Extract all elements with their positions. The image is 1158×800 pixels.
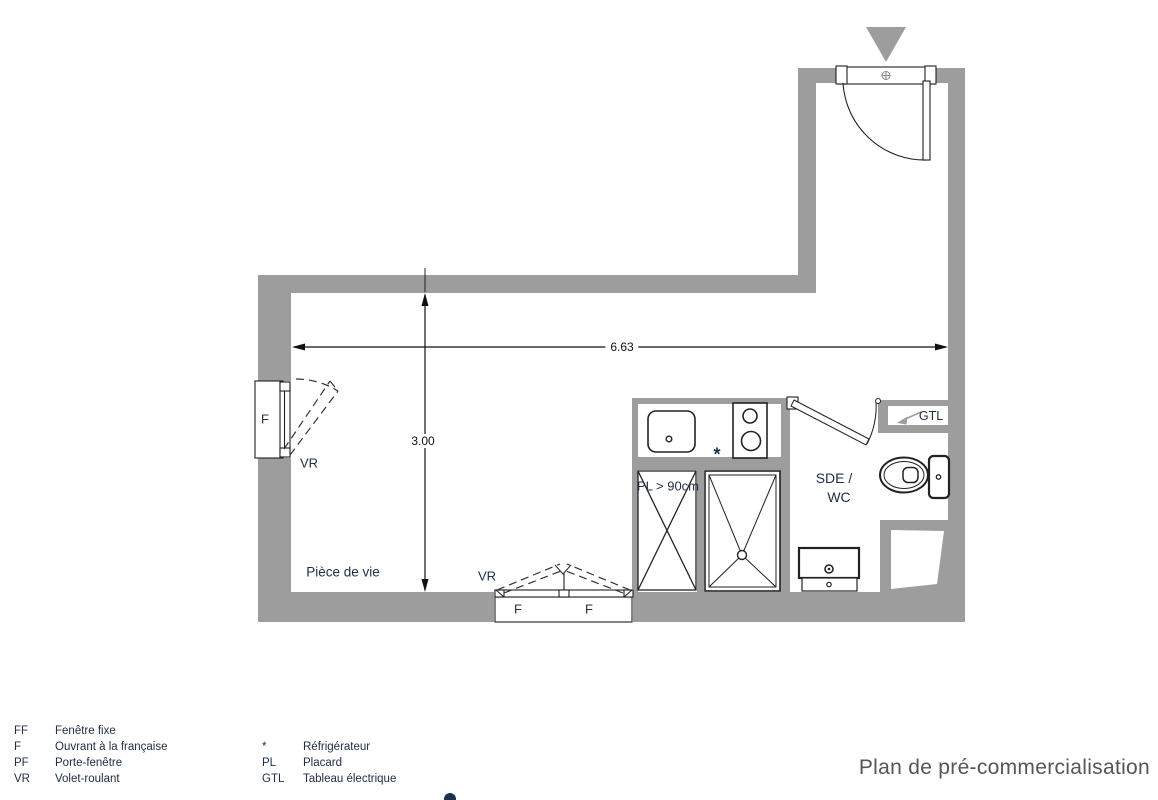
closet-label: PL > 90cm <box>637 479 699 494</box>
left-window-hinge-bottom <box>280 448 290 457</box>
entrance-door-jamb-left <box>836 66 847 84</box>
gtl-niche-top-wall <box>888 400 948 406</box>
legend-abbr: VR <box>14 773 55 785</box>
bathroom-door-leaf <box>791 400 869 445</box>
entrance-marker-triangle <box>866 27 906 62</box>
legend-item-pl: PLPlacard <box>262 757 342 769</box>
legend-label: Réfrigérateur <box>303 741 370 753</box>
bottom-window-type-label-2: F <box>585 602 593 617</box>
fridge-marker: * <box>713 445 720 466</box>
legend-abbr: F <box>14 741 55 753</box>
floor-plan-page: F VR Pièce de vie VR F F PL > 90cm SDE /… <box>0 0 1158 800</box>
top-wall-main-room <box>258 275 816 293</box>
plan-title: Plan de pré-commercialisation <box>859 756 1150 780</box>
vanity-drawer-knob <box>827 582 831 586</box>
dimension-width-value: 6.63 <box>605 340 638 354</box>
cooktop-burner-small <box>743 409 757 423</box>
left-window-type-label: F <box>261 412 269 427</box>
sink <box>648 411 695 452</box>
legend-abbr: * <box>262 741 303 753</box>
legend-abbr: GTL <box>262 773 303 785</box>
legend-label: Tableau électrique <box>303 773 396 785</box>
sink-drain <box>666 436 672 442</box>
entrance-door <box>836 66 936 160</box>
shower-drain <box>738 551 747 560</box>
bathroom-door <box>787 397 881 445</box>
peephole-symbol <box>882 71 891 80</box>
legend-abbr: PF <box>14 757 55 769</box>
walls <box>258 27 965 622</box>
corridor-left-wall <box>798 68 816 293</box>
entrance-door-leaf <box>923 81 930 160</box>
legend-item-f: FOuvrant à la française <box>14 741 168 753</box>
legend-item-vr: VRVolet-roulant <box>14 773 120 785</box>
toilet-flush <box>903 468 918 483</box>
bathroom-label-line1: SDE / <box>816 470 853 486</box>
living-room-label: Pièce de vie <box>306 565 380 580</box>
shower-tray-outer <box>705 471 780 591</box>
left-window-shutter-label: VR <box>300 456 318 471</box>
legend-item-fridge: *Réfrigérateur <box>262 741 370 753</box>
cooktop-burner-large <box>742 432 761 451</box>
toilet <box>880 456 949 498</box>
floor-plan-drawing <box>0 0 1158 800</box>
shower-tray-inner <box>709 475 776 587</box>
bathroom-door-swing-arc <box>867 401 876 444</box>
legend-label: Porte-fenêtre <box>55 757 122 769</box>
dimension-height <box>422 268 429 592</box>
entrance-door-swing-arc <box>843 83 927 160</box>
gtl-niche-bottom-wall <box>878 425 948 433</box>
bathroom-label-line2: WC <box>827 489 850 505</box>
legend-item-pf: PFPorte-fenêtre <box>14 757 122 769</box>
toilet-tank-button <box>936 475 940 479</box>
vanity <box>799 548 859 591</box>
logo-fragment <box>444 793 456 800</box>
bottom-window-type-label-1: F <box>514 602 522 617</box>
bottom-window-mullion <box>559 590 569 597</box>
duct-shaft <box>891 530 944 589</box>
dimension-height-value: 3.00 <box>408 434 437 448</box>
legend-item-ff: FFFenêtre fixe <box>14 725 116 737</box>
legend-item-gtl: GTLTableau électrique <box>262 773 396 785</box>
left-window-hinge-top <box>280 382 290 391</box>
left-window-swing-dashed <box>284 379 338 455</box>
legend-label: Placard <box>303 757 342 769</box>
bathroom-left-partition <box>780 470 790 592</box>
legend-label: Volet-roulant <box>55 773 120 785</box>
bottom-window-shutter-label: VR <box>478 569 496 584</box>
electrical-panel-label: GTL <box>919 409 943 423</box>
legend-abbr: PL <box>262 757 303 769</box>
bathroom-door-hinge <box>876 399 881 404</box>
gtl-arrow <box>897 412 921 425</box>
legend-label: Fenêtre fixe <box>55 725 116 737</box>
legend-abbr: FF <box>14 725 55 737</box>
legend-label: Ouvrant à la française <box>55 741 168 753</box>
shower <box>705 471 780 591</box>
